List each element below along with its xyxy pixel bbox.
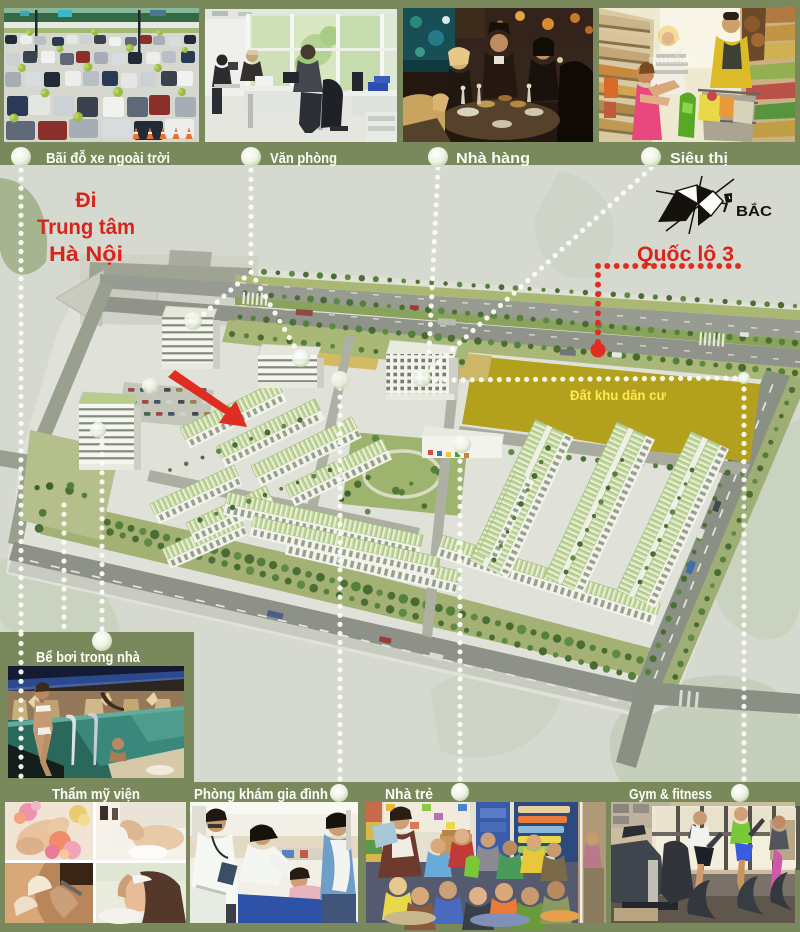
- svg-text:Hà Nội: Hà Nội: [49, 243, 123, 266]
- svg-text:Phòng khám gia đình: Phòng khám gia đình: [194, 786, 328, 803]
- svg-text:Bãi đỗ xe ngoài trời: Bãi đỗ xe ngoài trời: [46, 150, 170, 167]
- svg-text:Nhà hàng: Nhà hàng: [456, 150, 530, 167]
- svg-text:Nhà trẻ: Nhà trẻ: [385, 786, 433, 803]
- svg-text:Trung tâm: Trung tâm: [37, 216, 135, 239]
- svg-text:Gym & fitness: Gym & fitness: [629, 786, 712, 803]
- svg-text:Đi: Đi: [76, 189, 97, 212]
- svg-text:BẮC: BẮC: [736, 202, 773, 220]
- svg-text:muaban: muaban: [648, 52, 698, 67]
- svg-text:Bể bơi trong nhà: Bể bơi trong nhà: [36, 650, 141, 666]
- svg-text:Văn phòng: Văn phòng: [270, 150, 337, 167]
- svg-text:Quốc lộ 3: Quốc lộ 3: [637, 243, 734, 266]
- svg-text:Đất khu dân cư: Đất khu dân cư: [570, 387, 667, 403]
- svg-text:Siêu thị: Siêu thị: [670, 150, 728, 167]
- svg-text:Thẩm mỹ viện: Thẩm mỹ viện: [52, 786, 140, 803]
